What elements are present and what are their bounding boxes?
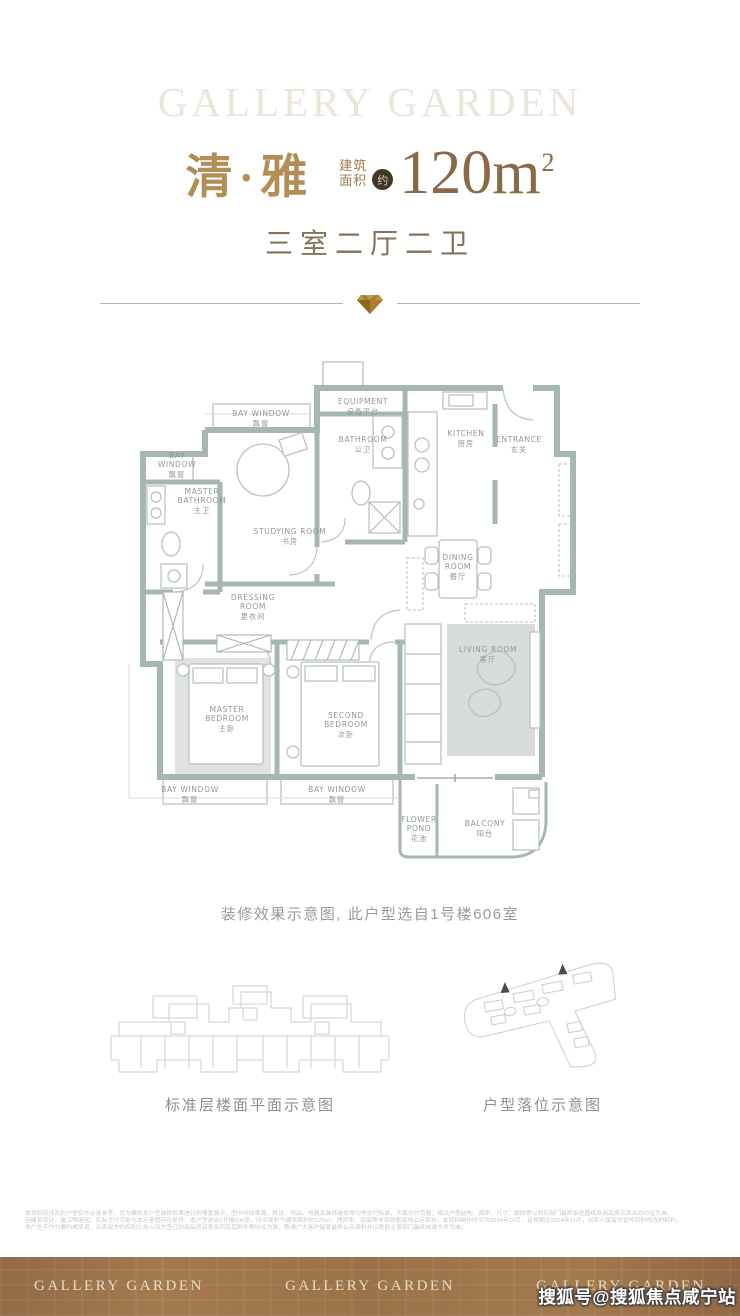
sohu-watermark: 搜狐号@搜狐焦点咸宁站 xyxy=(538,1284,736,1309)
area-number: 120m xyxy=(399,139,540,207)
area-superscript: 2 xyxy=(541,148,554,177)
disclaimer-line-1: 本资料所涉及的户型仅作示意参考，仅为模拟本户型装修效果进行的情景展示，图中所绘家… xyxy=(25,1211,717,1218)
brochure-page: GALLERY GARDEN 清·雅 建筑 面积 约 120m2 三室二厅二卫 xyxy=(0,0,740,1316)
room-label-dressing-room: DRESSINGROOM更衣间 xyxy=(231,593,275,621)
unit-location-diagram xyxy=(448,960,638,1082)
room-label-kitchen: KITCHEN厨房 xyxy=(447,429,484,448)
area-label-line1: 建筑 xyxy=(339,158,367,173)
diamond-icon xyxy=(357,291,383,315)
area-value: 120m2 xyxy=(399,142,554,204)
room-label-flower-pond: FLOWERPOND花池 xyxy=(401,815,437,843)
room-label-bay-window-top: BAY WINDOW飘窗 xyxy=(232,409,290,428)
room-label-balcony: BALCONY阳台 xyxy=(465,819,505,838)
disclaimer-line-2: 因建筑设计、施工等原因，实际交付可能与本示意图存在差异；本户型选自1号楼606室… xyxy=(25,1218,717,1225)
area-label: 建筑 面积 xyxy=(339,158,367,188)
divider-line-left xyxy=(100,303,343,304)
title-row: 清·雅 建筑 面积 约 120m2 xyxy=(0,138,740,207)
brand-watermark: GALLERY GARDEN xyxy=(0,78,740,126)
ornament-divider xyxy=(100,290,640,316)
footer-brand-center: GALLERY GARDEN xyxy=(285,1278,455,1295)
footer-brand-left: GALLERY GARDEN xyxy=(34,1278,204,1295)
disclaimer-line-3: 本广告不作为要约或承诺，买卖双方的权利义务以双方签订的商品房买卖合同及其附件等协… xyxy=(25,1225,717,1232)
layout-summary: 三室二厅二卫 xyxy=(0,222,740,262)
approx-badge: 约 xyxy=(372,169,393,190)
unit-name: 清·雅 xyxy=(186,138,314,207)
fixtures xyxy=(147,392,540,850)
area-label-line2: 面积 xyxy=(339,173,367,188)
divider-line-right xyxy=(397,303,640,304)
unit-location-caption: 户型落位示意图 xyxy=(440,1094,645,1115)
room-label-bay-window-bottom-left: BAY WINDOW飘窗 xyxy=(161,785,219,804)
unit-highlight-mark-2 xyxy=(557,963,568,975)
floorplan-drawing: BAY WINDOW飘窗 EQUIPMENT设备平台 BATHROOM公卫 KI… xyxy=(105,352,635,884)
room-label-entrance: ENTRANCE玄关 xyxy=(496,435,542,454)
legal-disclaimer: 本资料所涉及的户型仅作示意参考，仅为模拟本户型装修效果进行的情景展示，图中所绘家… xyxy=(25,1211,717,1232)
standard-floor-caption: 标准层楼面平面示意图 xyxy=(105,1094,395,1115)
standard-floor-diagram xyxy=(105,978,395,1090)
room-label-bay-window-bottom-mid: BAY WINDOW飘窗 xyxy=(308,785,366,804)
area-block: 建筑 面积 约 120m2 xyxy=(339,142,554,204)
floorplan-caption: 装修效果示意图, 此户型选自1号楼606室 xyxy=(0,903,740,924)
